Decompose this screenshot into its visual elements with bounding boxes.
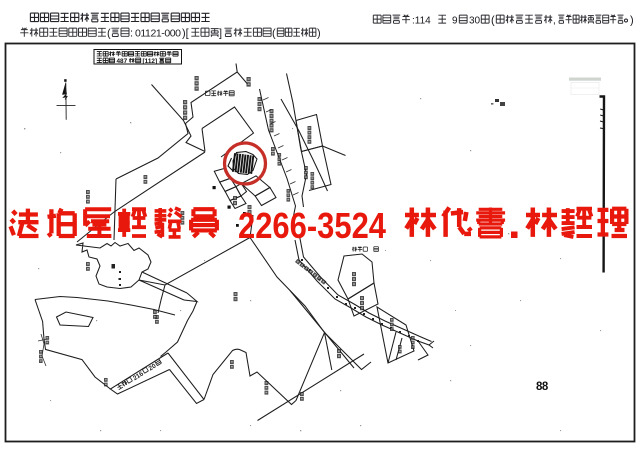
svg-text:(: ( [272, 28, 276, 40]
svg-text:01121-000: 01121-000 [135, 28, 181, 40]
svg-text:)[: )[ [182, 28, 189, 40]
svg-text:(: ( [491, 15, 495, 27]
svg-text:2266-3524: 2266-3524 [238, 205, 386, 246]
svg-text:[112]: [112] [143, 58, 158, 65]
svg-text::114: :114 [412, 15, 431, 26]
svg-text:88: 88 [536, 381, 549, 393]
svg-text::: : [130, 28, 133, 40]
svg-text:,: , [553, 15, 556, 26]
svg-text:(: ( [107, 28, 111, 40]
svg-text:): ) [317, 28, 321, 40]
svg-text:]: ] [219, 28, 222, 40]
svg-text:): ) [630, 15, 634, 27]
svg-text:487: 487 [117, 58, 128, 65]
svg-text:9: 9 [452, 15, 458, 26]
svg-text:30: 30 [469, 15, 481, 26]
